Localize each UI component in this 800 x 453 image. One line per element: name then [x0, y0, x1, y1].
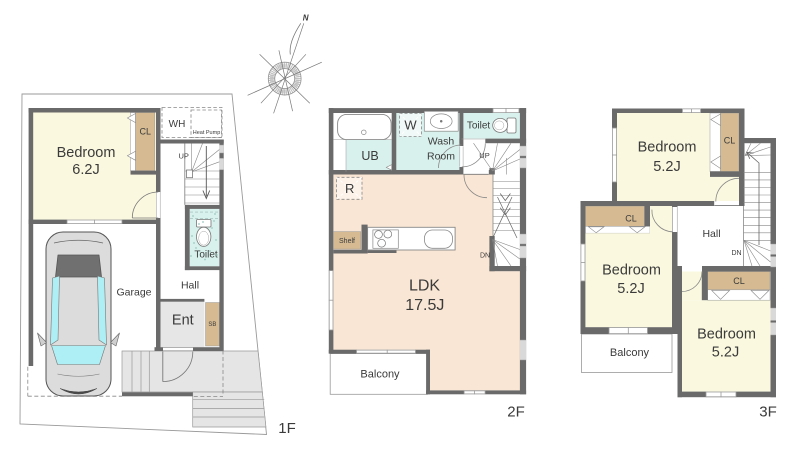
svg-text:Balcony: Balcony [360, 368, 400, 380]
svg-text:Balcony: Balcony [610, 347, 650, 359]
svg-text:N: N [303, 14, 309, 23]
svg-text:DN: DN [731, 250, 741, 257]
svg-text:5.2J: 5.2J [653, 159, 680, 175]
svg-text:Ent: Ent [172, 312, 194, 328]
svg-text:CL: CL [733, 276, 745, 286]
svg-text:UP: UP [178, 151, 188, 160]
svg-text:5.2J: 5.2J [617, 281, 644, 297]
svg-text:Room: Room [427, 151, 455, 163]
svg-text:Toilet: Toilet [467, 120, 491, 131]
svg-text:5.2J: 5.2J [712, 344, 739, 360]
svg-text:DN: DN [480, 252, 490, 259]
svg-text:CL: CL [724, 136, 736, 146]
svg-text:UB: UB [361, 149, 378, 163]
svg-text:6.2J: 6.2J [72, 162, 99, 178]
svg-text:Garage: Garage [116, 286, 151, 298]
svg-text:UP: UP [479, 151, 489, 160]
svg-text:SB: SB [208, 322, 216, 328]
svg-text:Bedroom: Bedroom [57, 145, 116, 161]
svg-text:WH: WH [169, 119, 186, 130]
svg-text:Bedroom: Bedroom [638, 140, 697, 156]
svg-text:W: W [404, 118, 417, 133]
svg-text:3F: 3F [759, 403, 777, 420]
svg-text:1F: 1F [278, 420, 296, 437]
svg-text:Toilet: Toilet [194, 250, 218, 261]
svg-text:17.5J: 17.5J [405, 297, 444, 314]
svg-text:2F: 2F [507, 403, 525, 420]
svg-text:CL: CL [140, 126, 152, 136]
svg-text:Bedroom: Bedroom [602, 262, 661, 278]
svg-text:Shelf: Shelf [339, 238, 355, 245]
svg-text:Wash: Wash [428, 136, 455, 148]
svg-text:Hall: Hall [181, 280, 199, 292]
svg-text:Heat Pump: Heat Pump [193, 130, 221, 136]
svg-text:Bedroom: Bedroom [697, 326, 756, 342]
svg-text:LDK: LDK [409, 278, 440, 295]
svg-text:Hall: Hall [702, 228, 720, 240]
svg-text:CL: CL [625, 214, 637, 224]
svg-text:R: R [345, 181, 354, 196]
